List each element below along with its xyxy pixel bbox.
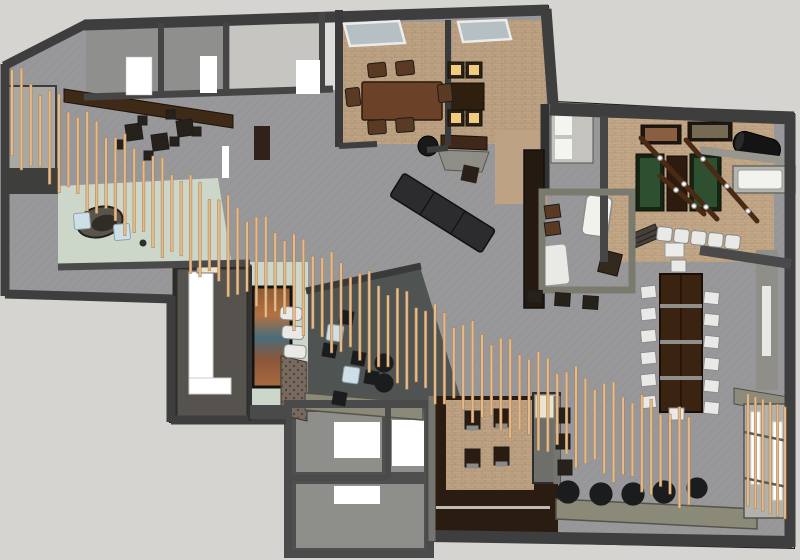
slat xyxy=(359,273,362,360)
dining-chairs-item xyxy=(395,60,414,76)
glow-chairs-item xyxy=(448,62,464,78)
office-chairs-item xyxy=(544,221,561,236)
slat xyxy=(415,308,418,382)
communal-chairs-left-item xyxy=(640,329,656,343)
white-stools-item xyxy=(673,228,689,243)
slat xyxy=(575,366,578,468)
bench-seats-item xyxy=(280,306,303,321)
slat xyxy=(199,182,202,277)
slat xyxy=(368,271,371,373)
dining-chairs-item xyxy=(368,119,387,134)
slat xyxy=(537,352,540,451)
communal-chairs-right-item xyxy=(703,357,719,371)
slat xyxy=(312,256,315,329)
corridor-chair-seats-item xyxy=(496,462,507,466)
dining-chairs-item xyxy=(396,117,415,132)
slat xyxy=(152,156,155,248)
slat xyxy=(641,395,644,493)
slat xyxy=(133,148,136,232)
slat xyxy=(584,378,587,464)
slat xyxy=(58,94,61,193)
slat xyxy=(11,70,14,156)
lounge-tables-item xyxy=(176,119,194,137)
communal-chairs-right-item xyxy=(703,313,719,327)
lounge-chairs-item xyxy=(138,116,147,125)
slat xyxy=(321,258,324,337)
slat xyxy=(48,90,51,184)
blue-tables-item xyxy=(113,223,130,240)
slat xyxy=(434,304,437,404)
pool-table-1-felt xyxy=(640,158,660,207)
dining-chairs-item xyxy=(437,83,453,102)
floorplan-render xyxy=(0,0,800,560)
slat xyxy=(20,68,23,170)
communal-chairs-right-item xyxy=(703,291,719,305)
slat xyxy=(547,358,550,452)
slat xyxy=(274,233,277,312)
slat xyxy=(67,112,70,187)
door-storage-1 xyxy=(126,57,152,95)
bottom-poufs-item xyxy=(557,481,579,503)
dining-chairs-item xyxy=(345,87,361,106)
office-chairs-item xyxy=(544,204,561,219)
dining-table-1 xyxy=(362,82,442,120)
communal-chairs-left-item xyxy=(640,285,656,299)
slat xyxy=(565,372,568,454)
table-band-1 xyxy=(660,304,702,308)
slat xyxy=(161,158,164,258)
slat xyxy=(30,84,33,166)
lounge-tables-item xyxy=(125,123,143,141)
kitchen-counter-2 xyxy=(555,139,572,159)
slat xyxy=(124,134,127,236)
white-stools-item xyxy=(656,226,672,241)
white-stools-item xyxy=(690,230,706,245)
window-slat xyxy=(776,404,778,516)
office-stools-item xyxy=(527,289,543,303)
wall-picture-2 xyxy=(692,125,728,138)
wall-northeast-step xyxy=(546,9,553,104)
beam-bulbs-item xyxy=(746,209,751,214)
host-chair xyxy=(461,165,480,184)
feature-stools-item xyxy=(332,391,347,406)
communal-chairs-right-item xyxy=(703,401,719,415)
skylight-dining-1 xyxy=(344,21,405,46)
slat xyxy=(218,200,221,281)
office-stools-item xyxy=(583,295,599,309)
slat xyxy=(39,96,42,167)
slat xyxy=(114,137,117,221)
slat xyxy=(424,311,427,388)
office-stools-item xyxy=(555,292,571,306)
east-chairs-item xyxy=(558,460,572,475)
beam-bulbs-item xyxy=(692,204,697,209)
slat xyxy=(236,208,239,295)
slat xyxy=(377,286,380,367)
slat xyxy=(293,234,296,331)
communal-chairs-left-item xyxy=(640,373,656,387)
slat xyxy=(302,239,305,335)
communal-chairs-left-item xyxy=(640,307,656,321)
blue-tables-item xyxy=(73,212,90,229)
slat xyxy=(227,195,230,297)
slat xyxy=(142,161,145,232)
dining-chairs-item xyxy=(367,62,386,78)
round-table xyxy=(418,136,438,156)
slat xyxy=(462,325,465,410)
white-stools-item xyxy=(724,234,740,249)
slat xyxy=(528,359,531,434)
slat xyxy=(556,374,559,445)
slat xyxy=(490,345,493,416)
window-slat xyxy=(784,407,786,519)
white-stools-item xyxy=(707,232,723,247)
beam-bulbs-item xyxy=(725,184,730,189)
beam-bulbs-item xyxy=(704,205,709,210)
slat xyxy=(95,121,98,213)
window-slat xyxy=(762,399,764,511)
wall-south xyxy=(431,536,792,542)
slat xyxy=(659,415,662,487)
floor-light-strip-foot xyxy=(189,378,231,394)
window-slat xyxy=(754,397,756,509)
east-wall-light xyxy=(762,286,771,356)
door-reception xyxy=(222,146,229,178)
slat xyxy=(396,288,399,383)
restroom-2-light xyxy=(392,420,424,466)
slat xyxy=(509,339,512,439)
slat xyxy=(208,199,211,270)
slat xyxy=(246,222,249,292)
lounge-chairs-item xyxy=(170,137,179,146)
bottom-poufs-item xyxy=(653,481,675,503)
slat xyxy=(77,117,80,193)
slat xyxy=(349,277,352,347)
communal-chairs-left-item xyxy=(640,351,656,365)
wall-games-north xyxy=(550,109,794,118)
lounge-chairs-item xyxy=(192,127,201,136)
slat xyxy=(500,338,503,431)
slat xyxy=(180,182,183,256)
slat xyxy=(453,328,456,398)
glow-chairs-item xyxy=(448,110,464,126)
slat xyxy=(622,397,625,475)
side-cube-seat xyxy=(665,243,684,257)
corridor-chair-seats-item xyxy=(467,426,478,430)
lounge-tables-item xyxy=(151,133,169,151)
wood-cabinet xyxy=(254,126,270,160)
slat xyxy=(603,383,606,474)
glow-chairs-item xyxy=(466,110,482,126)
feature-stools-item xyxy=(322,343,337,358)
corridor-chair-seats-item xyxy=(467,464,478,468)
slat xyxy=(265,216,268,317)
beam-bulbs-item xyxy=(658,156,663,161)
slat xyxy=(471,321,474,423)
slat xyxy=(669,414,672,494)
slat xyxy=(612,382,615,483)
slat xyxy=(189,175,192,273)
skylight-dining-2 xyxy=(458,20,511,42)
slat xyxy=(443,313,446,404)
communal-chairs-ends-item xyxy=(671,260,686,272)
floorplan-svg xyxy=(0,0,800,560)
slat xyxy=(171,175,174,252)
slat xyxy=(631,403,634,477)
door-storage-2 xyxy=(200,56,217,93)
floor-light-strip-vertical xyxy=(189,272,213,394)
kitchen-counter-1 xyxy=(555,113,572,135)
corridor-threshold xyxy=(436,506,550,509)
slat xyxy=(406,291,409,389)
slat xyxy=(594,390,597,460)
door-empty-room xyxy=(296,60,320,94)
slat xyxy=(340,263,343,352)
wall-reception-south xyxy=(58,263,250,267)
slat xyxy=(481,334,484,417)
slat xyxy=(688,417,691,505)
communal-chairs-right-item xyxy=(703,379,719,393)
slat xyxy=(255,217,258,307)
communal-chairs-right-item xyxy=(703,335,719,349)
slat xyxy=(387,295,390,367)
slat xyxy=(105,138,108,209)
wall-picture-1 xyxy=(645,128,677,141)
window-slat xyxy=(747,394,749,506)
slat xyxy=(678,407,681,509)
window-slat xyxy=(769,402,771,514)
bottom-poufs-item xyxy=(590,483,612,505)
slat xyxy=(330,252,333,353)
ac-unit-panel xyxy=(738,170,782,189)
beam-bulbs-item xyxy=(682,182,687,187)
slat xyxy=(518,355,521,431)
restroom-3-light xyxy=(334,486,380,504)
beam-bulbs-item xyxy=(701,157,706,162)
lounge-chairs-item xyxy=(166,110,175,119)
slat xyxy=(283,241,286,314)
slat xyxy=(650,399,653,495)
table-band-2 xyxy=(660,340,702,344)
table-band-3 xyxy=(660,376,702,380)
feature-stools-item xyxy=(364,370,379,385)
glow-chairs-item xyxy=(466,62,482,78)
blue-tables-item xyxy=(342,366,360,384)
beam-bulbs-item xyxy=(674,188,679,193)
reception-plant xyxy=(140,240,147,247)
restroom-1-light xyxy=(334,422,380,458)
slat xyxy=(86,112,89,212)
bench-seats-item xyxy=(284,344,307,359)
